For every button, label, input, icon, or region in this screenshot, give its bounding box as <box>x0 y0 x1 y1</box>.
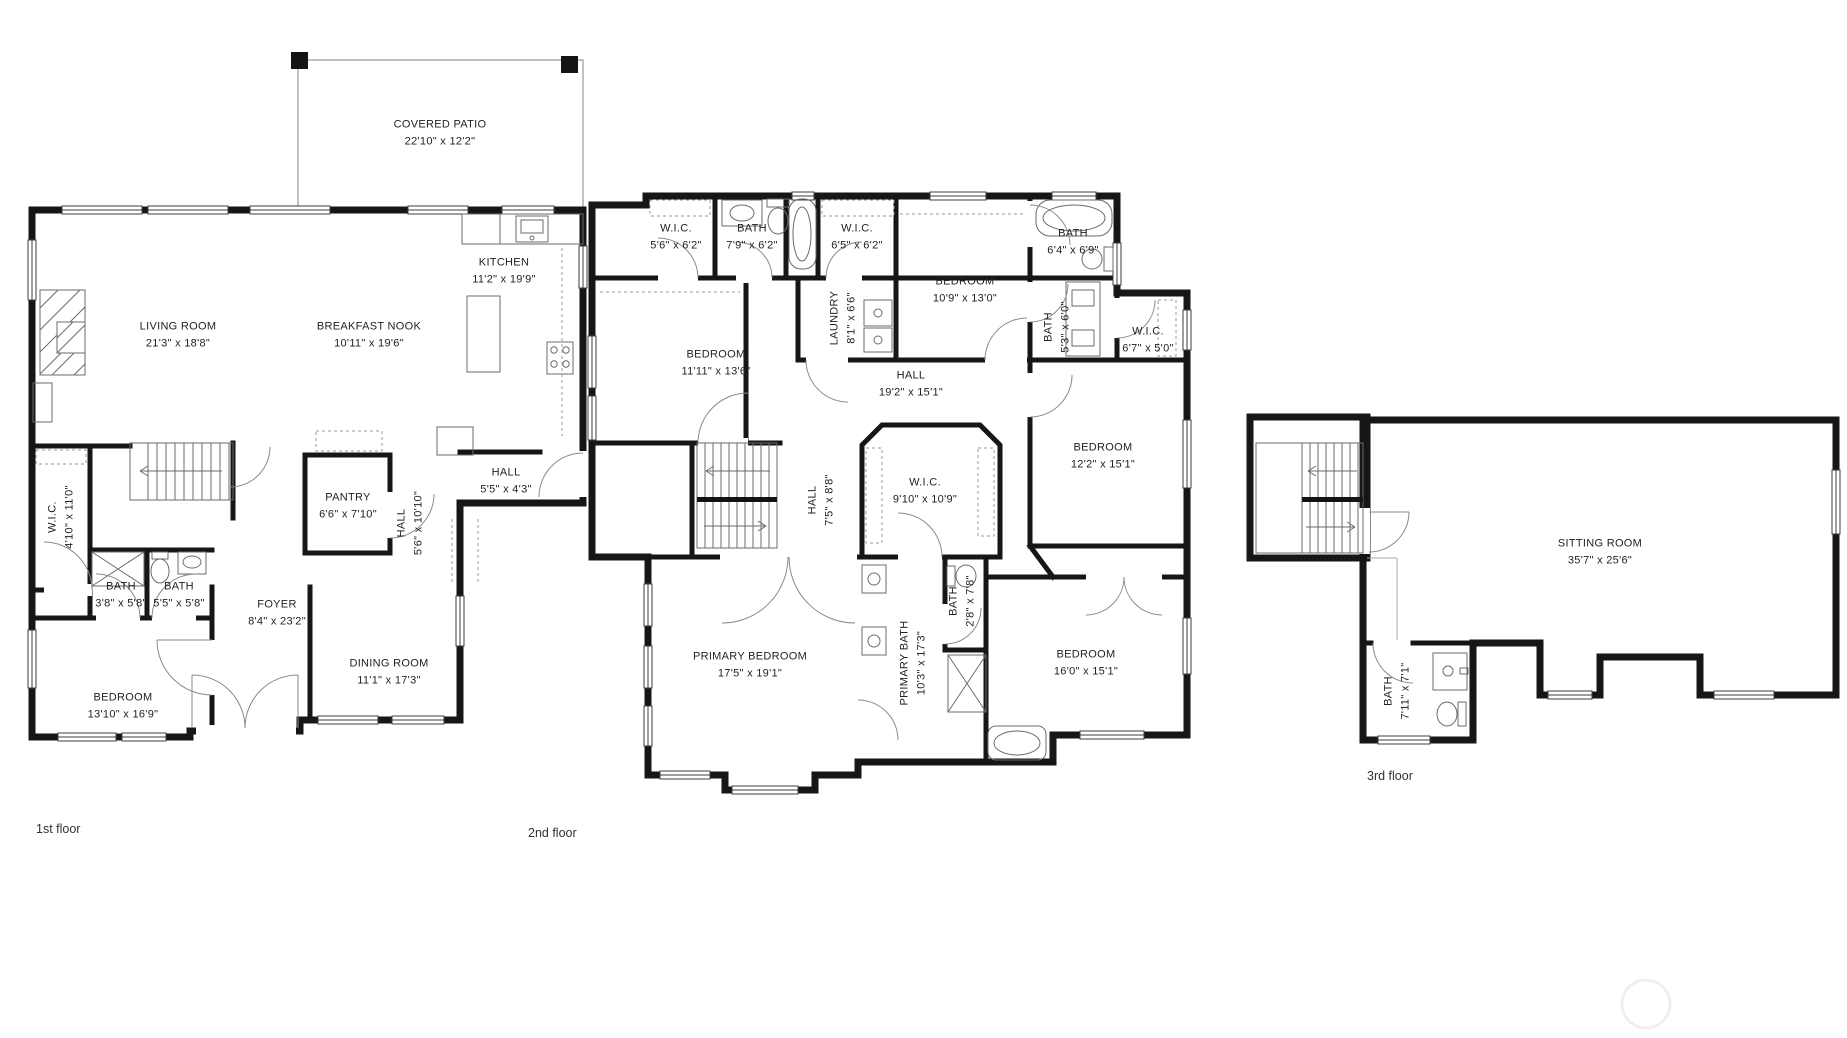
second-floor-doors <box>658 205 1162 740</box>
double-vanity <box>1066 282 1100 356</box>
toilet <box>151 552 169 583</box>
covered-patio-outline <box>298 60 583 208</box>
patio-post <box>561 56 578 73</box>
wic-shelf <box>822 200 894 216</box>
bathtub <box>988 726 1046 760</box>
nook-bench <box>316 431 382 451</box>
laundry-appliances <box>864 300 892 352</box>
first-floor-plan <box>28 52 589 741</box>
first-floor-door-openings <box>44 451 589 737</box>
third-floor-door-openings <box>1358 508 1370 554</box>
first-floor-doors <box>44 447 583 728</box>
first-floor-walls <box>32 210 583 737</box>
first-floor-stairs <box>130 443 233 500</box>
wic-shelf <box>1158 300 1176 356</box>
window-seat <box>33 383 52 422</box>
third-floor-fixtures <box>1433 653 1468 726</box>
kitchen-island <box>467 296 500 372</box>
bath-sink <box>178 552 206 574</box>
wic-shelf <box>650 200 710 216</box>
stove <box>547 342 573 374</box>
primary-vanity <box>862 565 886 655</box>
wic-shelf <box>36 450 86 464</box>
toilet <box>1437 702 1466 726</box>
floorplan-canvas: 1st floorCOVERED PATIO22'10" x 12'2"LIVI… <box>0 0 1847 1038</box>
second-floor-walls <box>592 196 1187 790</box>
toilet <box>1082 247 1113 271</box>
watermark-circle <box>1622 980 1670 1028</box>
third-floor-stairs <box>1256 443 1397 640</box>
third-floor-plan <box>1250 417 1840 744</box>
second-floor-plan <box>588 192 1191 794</box>
patio-post <box>291 52 308 69</box>
second-floor-fixtures <box>600 199 1176 760</box>
shower <box>92 552 144 586</box>
floorplan-drawing <box>0 0 1847 1038</box>
wic-shelf <box>866 448 882 543</box>
bath-sink <box>722 200 762 226</box>
third-floor-doors <box>1369 512 1413 683</box>
first-floor-fixtures <box>33 214 583 586</box>
linen-closet <box>948 655 986 712</box>
second-floor-stairs <box>697 443 777 548</box>
kitchen-fixtures <box>462 214 583 436</box>
third-floor-windows <box>1378 470 1840 744</box>
fireplace <box>40 290 85 375</box>
bathtub <box>1036 200 1112 236</box>
toilet <box>947 565 976 587</box>
bath-sink <box>1433 653 1468 690</box>
wic-shelf <box>978 448 994 536</box>
